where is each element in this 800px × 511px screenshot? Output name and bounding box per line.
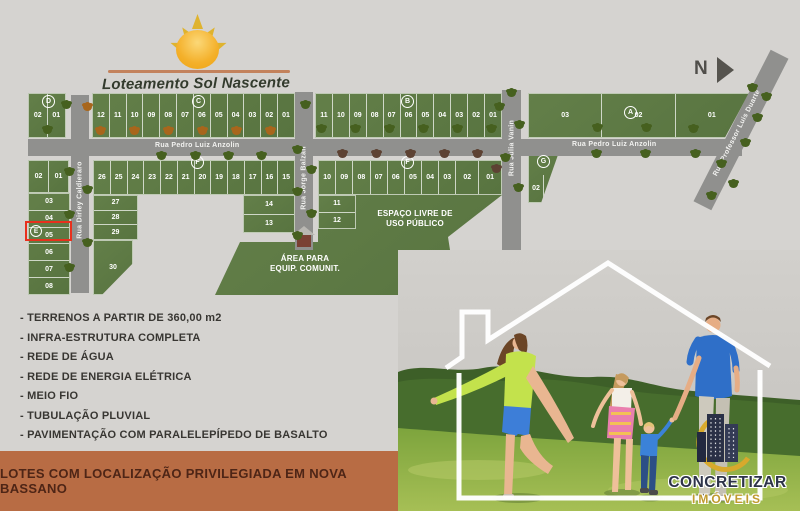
tree-icon: [164, 127, 173, 135]
tree-icon: [257, 152, 266, 160]
block-badge-b: B: [401, 95, 414, 108]
brand-name: CONCRETIZAR: [655, 474, 800, 492]
feature-item: - TERRENOS A PARTIR DE 360,00 m2: [20, 312, 350, 324]
tree-icon: [385, 125, 394, 133]
tree-icon: [495, 103, 504, 111]
tree-icon: [440, 150, 449, 158]
equipment-area-label: ÁREA PARA EQUIP. COMUNIT.: [245, 254, 365, 274]
lot-number: 08: [29, 277, 69, 294]
tree-icon: [293, 146, 302, 154]
tree-icon: [317, 125, 326, 133]
tree-icon: [514, 184, 523, 192]
tree-icon: [43, 126, 52, 134]
lot-number: 17: [244, 161, 261, 194]
lot-number: 11: [109, 94, 126, 137]
tree-icon: [741, 139, 750, 147]
lot-number: 30: [94, 241, 132, 294]
block-a: 030201: [528, 93, 749, 138]
lot-number: 23: [143, 161, 160, 194]
lot-number: 03: [29, 194, 69, 210]
tree-icon: [351, 125, 360, 133]
lot-number: 02: [467, 94, 484, 137]
block-badge-g: G: [537, 155, 550, 168]
lot-number: 14: [244, 196, 294, 214]
feature-list: - TERRENOS A PARTIR DE 360,00 m2- INFRA-…: [20, 312, 350, 449]
block-f-west-right: 1413: [243, 195, 295, 233]
block-f-west-bottom: 30: [93, 240, 133, 295]
lot-number: 10: [332, 94, 349, 137]
lot-number: 25: [110, 161, 127, 194]
lot-number: 15: [277, 161, 294, 194]
tree-icon: [191, 152, 200, 160]
lot-number: 16: [261, 161, 278, 194]
lot-number: 01: [277, 94, 294, 137]
feature-item: - REDE DE ENERGIA ELÉTRICA: [20, 371, 350, 383]
north-arrow-icon: [717, 57, 734, 83]
lot-number: 01: [48, 161, 68, 192]
block-e-top: 0201: [28, 160, 69, 193]
lot-number: 02: [29, 161, 48, 192]
tree-icon: [293, 188, 302, 196]
street-label: Rua Pedro Luiz Anzolin: [572, 141, 657, 148]
tree-icon: [338, 150, 347, 158]
tree-icon: [65, 168, 74, 176]
tree-icon: [492, 165, 501, 173]
tree-icon: [487, 125, 496, 133]
brand-building-icon: [655, 412, 800, 474]
tree-icon: [198, 127, 207, 135]
tree-icon: [501, 154, 510, 162]
lot-number: 07: [370, 161, 387, 194]
tree-icon: [748, 84, 757, 92]
lot-number: 02: [455, 161, 478, 194]
title-underline: [108, 70, 290, 73]
tree-icon: [406, 150, 415, 158]
tree-icon: [266, 127, 275, 135]
tree-icon: [65, 264, 74, 272]
tree-icon: [729, 180, 738, 188]
feature-item: - INFRA-ESTRUTURA COMPLETA: [20, 332, 350, 344]
lot-number: 05: [210, 94, 227, 137]
block-badge-f-east: F: [401, 156, 414, 169]
lot-number: 13: [244, 214, 294, 233]
tree-icon: [453, 125, 462, 133]
brand-subtitle: IMÓVEIS: [655, 492, 800, 506]
tree-icon: [301, 101, 310, 109]
tree-icon: [83, 103, 92, 111]
page-title: Loteamento Sol Nascente: [102, 74, 312, 93]
tree-icon: [473, 150, 482, 158]
feature-item: - PAVIMENTAÇÃO COM PARALELEPÍPEDO DE BAS…: [20, 429, 350, 441]
lot-number: 04: [421, 161, 438, 194]
block-badge-c: C: [192, 95, 205, 108]
feature-item: - REDE DE ÁGUA: [20, 351, 350, 363]
banner-text: LOTES COM LOCALIZAÇÃO PRIVILEGIADA EM NO…: [0, 466, 412, 496]
lot-number: 29: [94, 224, 137, 239]
street-label: Rua Dirley Caldieraro: [77, 161, 84, 239]
tree-icon: [707, 192, 716, 200]
tree-icon: [515, 121, 524, 129]
block-badge-d: D: [42, 95, 55, 108]
block-f-west-left: 272829: [93, 195, 138, 240]
tree-icon: [372, 150, 381, 158]
lot-number: 24: [127, 161, 144, 194]
lot-number: 03: [529, 94, 601, 137]
tree-icon: [717, 160, 726, 168]
feature-item: - TUBULAÇÃO PLUVIAL: [20, 410, 350, 422]
tree-icon: [762, 93, 771, 101]
tree-icon: [691, 150, 700, 158]
lot-number: 07: [29, 260, 69, 277]
lot-number: 02: [601, 94, 674, 137]
tree-icon: [593, 124, 602, 132]
tree-icon: [62, 101, 71, 109]
north-label: N: [694, 58, 708, 80]
lot-number: 26: [94, 161, 110, 194]
lot-number: 22: [160, 161, 177, 194]
lot-number: 03: [243, 94, 260, 137]
tree-icon: [307, 166, 316, 174]
lot-number: 02: [529, 175, 543, 202]
tree-icon: [96, 127, 105, 135]
lot-number: 09: [142, 94, 159, 137]
street-label: Rua Jorge Balzan: [301, 146, 308, 210]
lot-number: 04: [433, 94, 450, 137]
street-label: Rua Julia Vanin: [509, 120, 516, 176]
sun-ray-icon: [192, 14, 203, 29]
tree-icon: [293, 232, 302, 240]
public-area-label: ESPAÇO LIVRE DE USO PÚBLICO: [350, 209, 480, 229]
tree-icon: [753, 114, 762, 122]
tree-icon: [641, 150, 650, 158]
tree-icon: [307, 210, 316, 218]
lot-number: 08: [352, 161, 369, 194]
tree-icon: [130, 127, 139, 135]
tree-icon: [642, 124, 651, 132]
lot-number: 10: [319, 161, 335, 194]
bottom-banner: LOTES COM LOCALIZAÇÃO PRIVILEGIADA EM NO…: [0, 451, 412, 511]
tree-icon: [83, 239, 92, 247]
lot-number: 07: [176, 94, 193, 137]
lot-number: 09: [335, 161, 352, 194]
lot-number: 01: [543, 175, 558, 202]
tree-icon: [592, 150, 601, 158]
tree-icon: [224, 152, 233, 160]
lot-number: 27: [94, 196, 137, 210]
tree-icon: [157, 152, 166, 160]
tree-icon: [65, 211, 74, 219]
block-badge-e-highlight: E: [30, 225, 42, 237]
sun-icon: [176, 30, 219, 69]
brand-logo: CONCRETIZAR IMÓVEIS: [655, 412, 800, 511]
street-label: Rua Pedro Luiz Anzolin: [155, 142, 240, 149]
lot-number: 18: [227, 161, 244, 194]
tree-icon: [83, 186, 92, 194]
tree-icon: [507, 89, 516, 97]
block-e-column: 030405060708: [28, 193, 70, 295]
lot-number: 06: [29, 243, 69, 260]
tree-icon: [689, 125, 698, 133]
lot-number: 19: [210, 161, 227, 194]
lot-number: 28: [94, 210, 137, 225]
block-badge-a: A: [624, 106, 637, 119]
feature-item: - MEIO FIO: [20, 390, 350, 402]
tree-icon: [232, 127, 241, 135]
tree-icon: [419, 125, 428, 133]
lot-number: 03: [438, 161, 455, 194]
lot-number: 08: [366, 94, 383, 137]
flyer-poster: Loteamento Sol Nascente N ESPAÇO LIVRE D…: [0, 0, 800, 511]
